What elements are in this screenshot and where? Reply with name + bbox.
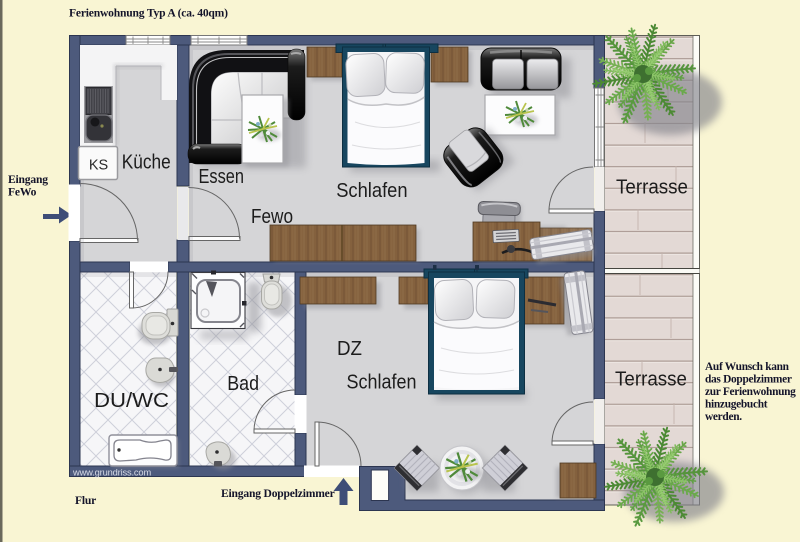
svg-text:Ferienwohnung Typ A (ca. 40qm): Ferienwohnung Typ A (ca. 40qm): [69, 7, 228, 20]
svg-text:www.grundriss.com: www.grundriss.com: [72, 468, 151, 478]
svg-text:DZ: DZ: [337, 338, 362, 360]
svg-text:Schlafen: Schlafen: [336, 180, 407, 202]
svg-text:FeWo: FeWo: [8, 186, 37, 199]
svg-text:Terrasse: Terrasse: [615, 369, 687, 391]
svg-text:das Doppelzimmer: das Doppelzimmer: [705, 374, 792, 386]
svg-text:Terrasse: Terrasse: [616, 177, 688, 199]
svg-text:werden.: werden.: [705, 411, 742, 423]
svg-text:Essen: Essen: [199, 166, 245, 188]
svg-text:Schlafen: Schlafen: [347, 372, 417, 394]
svg-text:Flur: Flur: [75, 494, 96, 507]
svg-text:Eingang Doppelzimmer: Eingang Doppelzimmer: [221, 487, 335, 500]
svg-text:Bad: Bad: [227, 373, 259, 395]
svg-text:Auf Wunsch kann: Auf Wunsch kann: [705, 361, 790, 373]
svg-text:zur Ferienwohnung: zur Ferienwohnung: [705, 386, 796, 398]
svg-text:KS: KS: [89, 158, 108, 174]
svg-text:DU/WC: DU/WC: [94, 390, 169, 412]
svg-text:Küche: Küche: [122, 152, 171, 174]
svg-text:hinzugebucht: hinzugebucht: [705, 399, 768, 411]
svg-text:Eingang: Eingang: [8, 173, 48, 186]
